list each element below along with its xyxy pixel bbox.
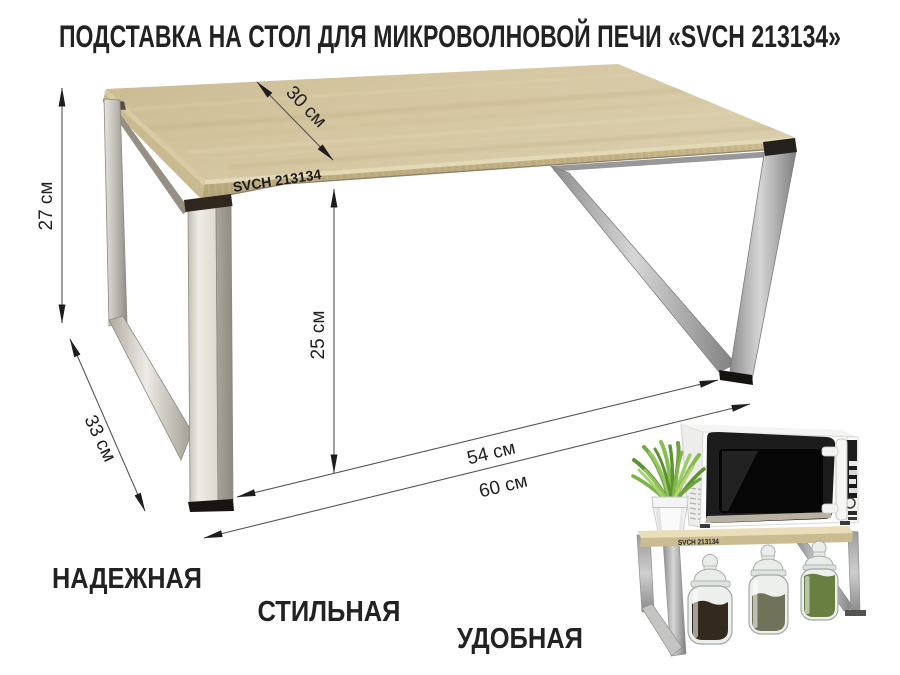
- svg-text:СТИЛЬНАЯ: СТИЛЬНАЯ: [258, 596, 401, 628]
- svg-text:60 см: 60 см: [477, 471, 530, 503]
- svg-text:УДОБНАЯ: УДОБНАЯ: [457, 623, 583, 655]
- svg-text:54 см: 54 см: [465, 438, 518, 470]
- svg-text:25 см: 25 см: [308, 311, 329, 360]
- svg-text:НАДЕЖНАЯ: НАДЕЖНАЯ: [52, 563, 202, 595]
- svg-text:ПОДСТАВКА НА СТОЛ ДЛЯ МИКРОВОЛ: ПОДСТАВКА НА СТОЛ ДЛЯ МИКРОВОЛНОВОЙ ПЕЧИ…: [59, 18, 841, 54]
- svg-text:27 см: 27 см: [36, 182, 57, 231]
- svg-text:SVCH 213134: SVCH 213134: [678, 537, 720, 547]
